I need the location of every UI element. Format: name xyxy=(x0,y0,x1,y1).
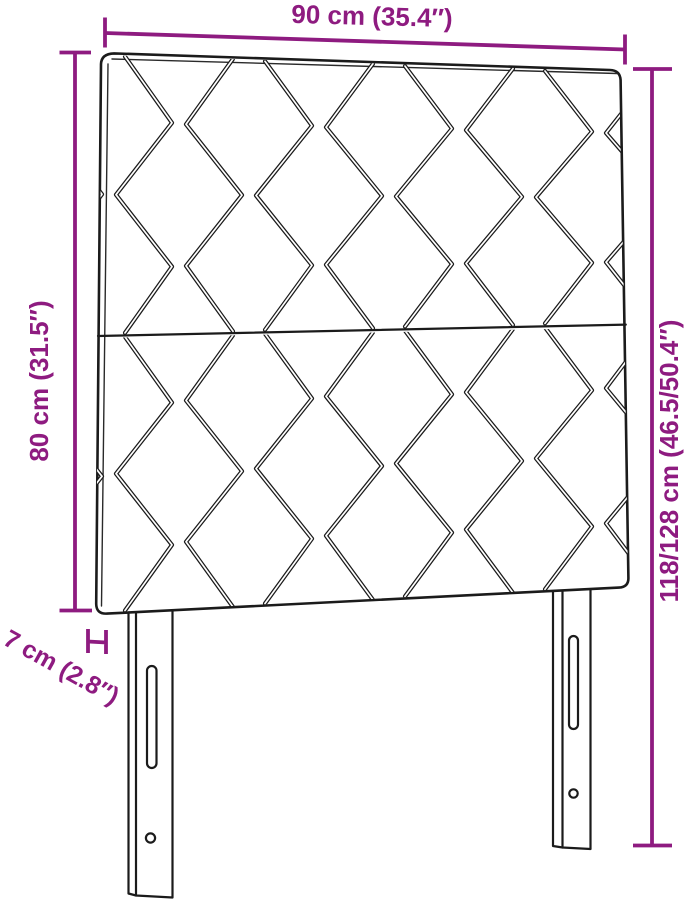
right-leg-slot xyxy=(569,636,578,729)
right-leg-hole xyxy=(569,789,577,797)
panel-height-dimension-label: 80 cm (31.5″) xyxy=(26,300,52,461)
depth-dimension-bracket xyxy=(88,629,106,654)
dimension-diagram: 90 cm (35.4″) 80 cm (31.5″) 118/128 cm (… xyxy=(0,0,694,900)
width-dimension-label: 90 cm (35.4″) xyxy=(291,1,453,31)
width-dimension-line xyxy=(105,33,625,50)
headboard-line-art xyxy=(0,0,694,900)
depth-bracket-icon xyxy=(88,629,106,654)
left-leg-slot xyxy=(147,666,157,768)
right-leg xyxy=(553,585,591,849)
total-height-dimension-label: 118/128 cm (46.5/50.4″) xyxy=(656,320,682,603)
left-leg xyxy=(129,608,173,898)
panel-height-dimension xyxy=(60,53,93,611)
left-leg-hole xyxy=(146,833,155,842)
